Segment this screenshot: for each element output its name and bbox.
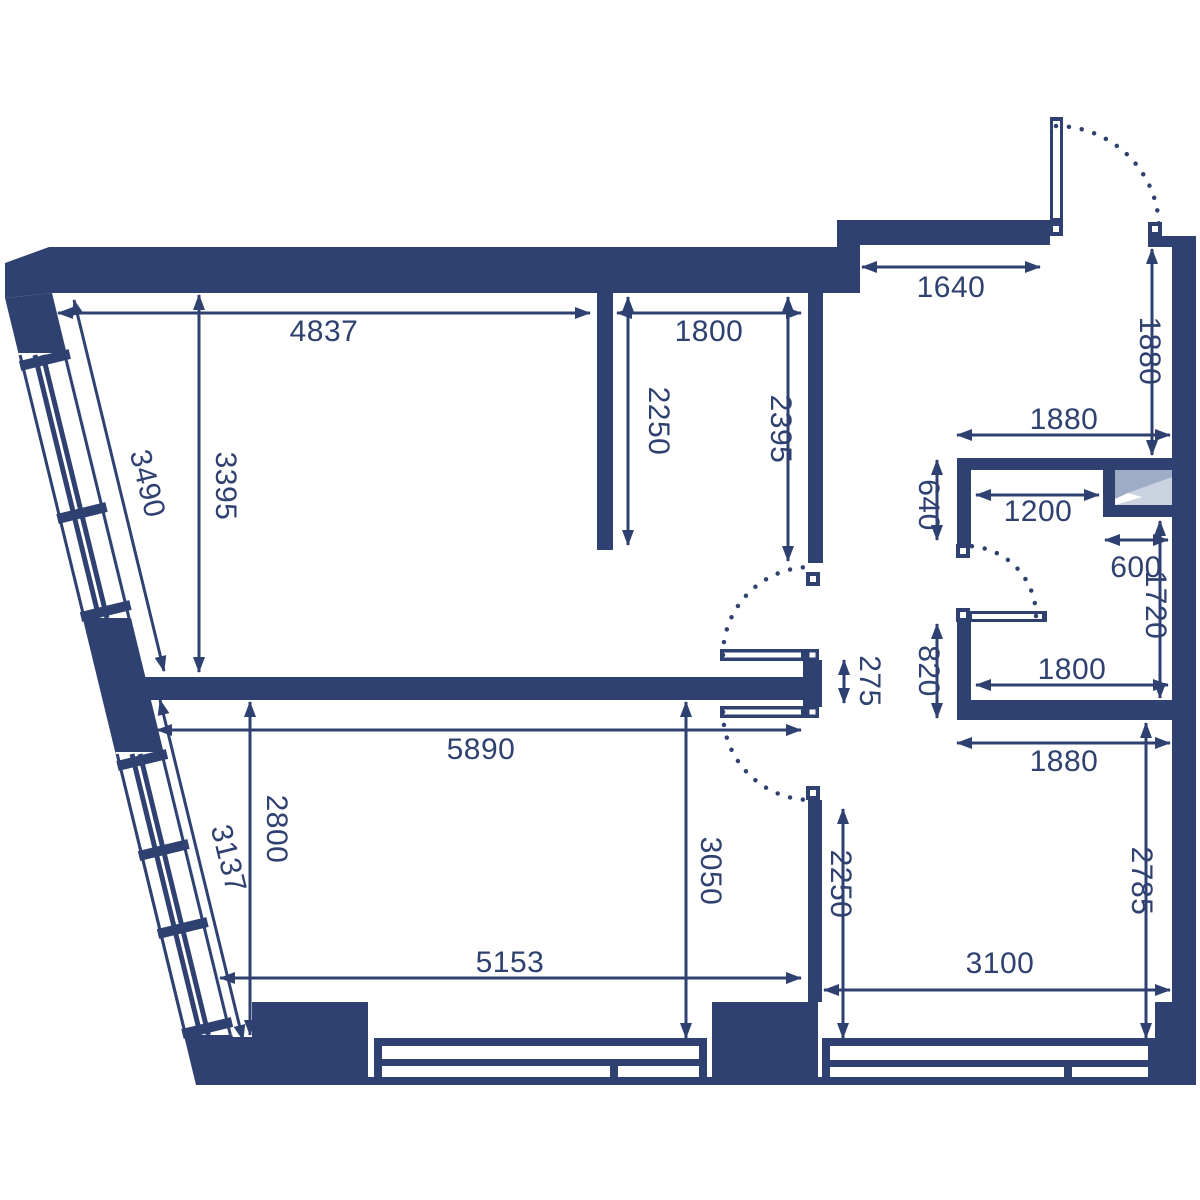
- top-wall-left: [5, 247, 860, 298]
- dim-kitchen-left-height: 2250: [824, 850, 857, 919]
- bath-wall-top: [957, 458, 1172, 470]
- dim-bath-outer-width: 1880: [1030, 403, 1099, 436]
- hall-door-upper: [720, 567, 820, 661]
- hall-door-lower: [720, 706, 820, 800]
- entry-door: [1049, 117, 1162, 236]
- dimension-lines: [58, 249, 1170, 1040]
- middle-wall: [143, 677, 803, 700]
- window-mullion: [610, 1059, 618, 1085]
- window-mullion: [1064, 1060, 1072, 1085]
- top-wall-right: [837, 220, 1050, 245]
- dim-right-partition-length: 2395: [764, 395, 797, 464]
- dim-bay-window-upper: 3490: [123, 446, 172, 521]
- dim-below-bath-width: 1880: [1030, 745, 1099, 778]
- ventilation-shaft: [1103, 470, 1172, 517]
- bay-bottom-jamb: [225, 1037, 252, 1050]
- dim-entry-side-height: 1880: [1133, 317, 1166, 386]
- dim-lower-room-left-height: 2800: [260, 795, 293, 864]
- right-corner-column: [1155, 1002, 1196, 1085]
- dim-bath-inner-top-width: 1200: [1004, 495, 1073, 528]
- lower-right-wall: [808, 800, 822, 1002]
- floor-plan-page: 4837 1800 1640 1880 1200 600 1800 1880 3…: [0, 0, 1200, 1200]
- bathroom-door: [956, 544, 1047, 622]
- dim-upper-mid-room-width: 1800: [675, 315, 744, 348]
- dimension-labels: 4837 1800 1640 1880 1200 600 1800 1880 3…: [123, 271, 1172, 980]
- dim-kitchen-right-height: 2785: [1125, 847, 1158, 916]
- dim-left-partition-length: 2250: [642, 387, 675, 456]
- dim-living-room-width: 4837: [290, 315, 359, 348]
- bay-window-upper: [18, 353, 131, 618]
- bottom-column-mid: [712, 1002, 818, 1083]
- dim-door-stub-width: 275: [853, 655, 886, 707]
- dim-bath-wall-upper: 640: [912, 479, 945, 531]
- dim-bath-inner-bottom-width: 1800: [1038, 653, 1107, 686]
- dim-lower-room-mid-height: 3050: [694, 837, 727, 906]
- door-swing-arc: [723, 712, 811, 800]
- dim-lower-room-width: 5153: [476, 946, 545, 979]
- dim-hall-span-width: 5890: [447, 733, 516, 766]
- bath-wall-left-upper: [957, 458, 971, 546]
- right-wall: [1172, 242, 1196, 1002]
- shaft-wall-bottom: [1103, 505, 1172, 517]
- dim-living-room-height: 3395: [209, 452, 242, 521]
- bath-wall-bottom: [957, 700, 1172, 720]
- floor-plan: 4837 1800 1640 1880 1200 600 1800 1880 3…: [0, 0, 1200, 1200]
- dim-bath-wall-lower: 820: [912, 645, 945, 697]
- partition-left: [597, 293, 613, 550]
- dim-entry-wall-width: 1640: [917, 271, 986, 304]
- partition-mid: [808, 293, 823, 563]
- door-swing-arc: [966, 546, 1036, 616]
- door-swing-arc: [723, 567, 811, 655]
- dim-bath-inner-right-height: 1720: [1139, 571, 1172, 640]
- bottom-wall-band: [196, 1077, 1196, 1085]
- bay-window-lower: [116, 752, 233, 1035]
- door-stub: [803, 660, 822, 707]
- bottom-column-left: [252, 1002, 368, 1085]
- dim-bay-window-lower: 3137: [204, 821, 253, 896]
- dim-kitchen-width: 3100: [966, 947, 1035, 980]
- door-swing-arc: [1056, 126, 1159, 229]
